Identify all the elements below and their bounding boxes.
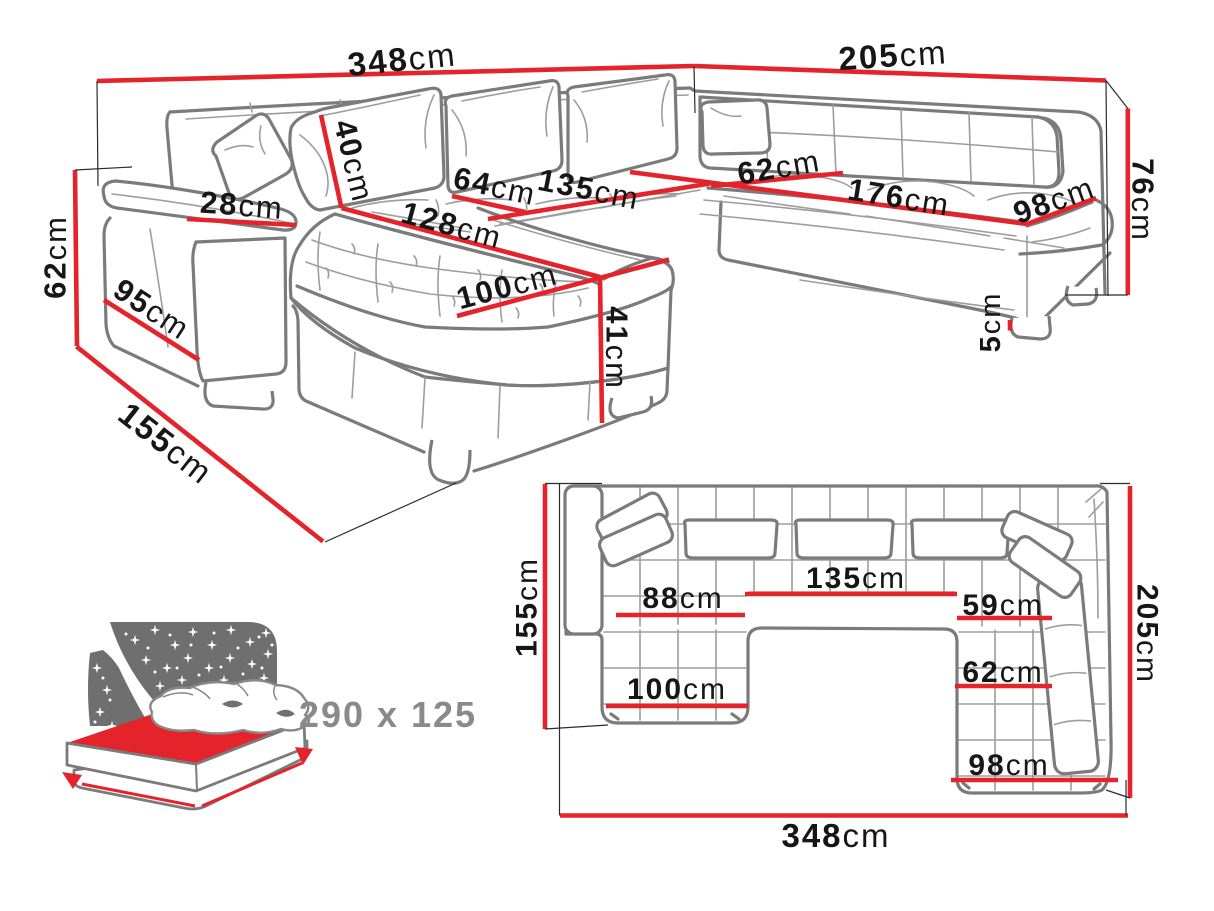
svg-text:135cm: 135cm [806, 562, 906, 595]
svg-text:5cm: 5cm [975, 292, 1007, 353]
svg-text:205cm: 205cm [837, 33, 948, 78]
svg-text:100cm: 100cm [627, 673, 727, 706]
svg-text:59cm: 59cm [962, 589, 1043, 622]
svg-text:41cm: 41cm [600, 306, 635, 390]
svg-text:88cm: 88cm [642, 582, 723, 615]
svg-text:155cm: 155cm [511, 557, 544, 657]
svg-text:290 x 125: 290 x 125 [299, 694, 477, 735]
svg-text:62cm: 62cm [962, 656, 1043, 689]
svg-text:205cm: 205cm [1131, 584, 1164, 684]
svg-text:98cm: 98cm [968, 749, 1049, 782]
svg-text:28cm: 28cm [199, 185, 285, 226]
svg-text:348cm: 348cm [781, 817, 890, 854]
svg-text:62cm: 62cm [38, 215, 73, 299]
svg-text:76cm: 76cm [1126, 158, 1161, 242]
